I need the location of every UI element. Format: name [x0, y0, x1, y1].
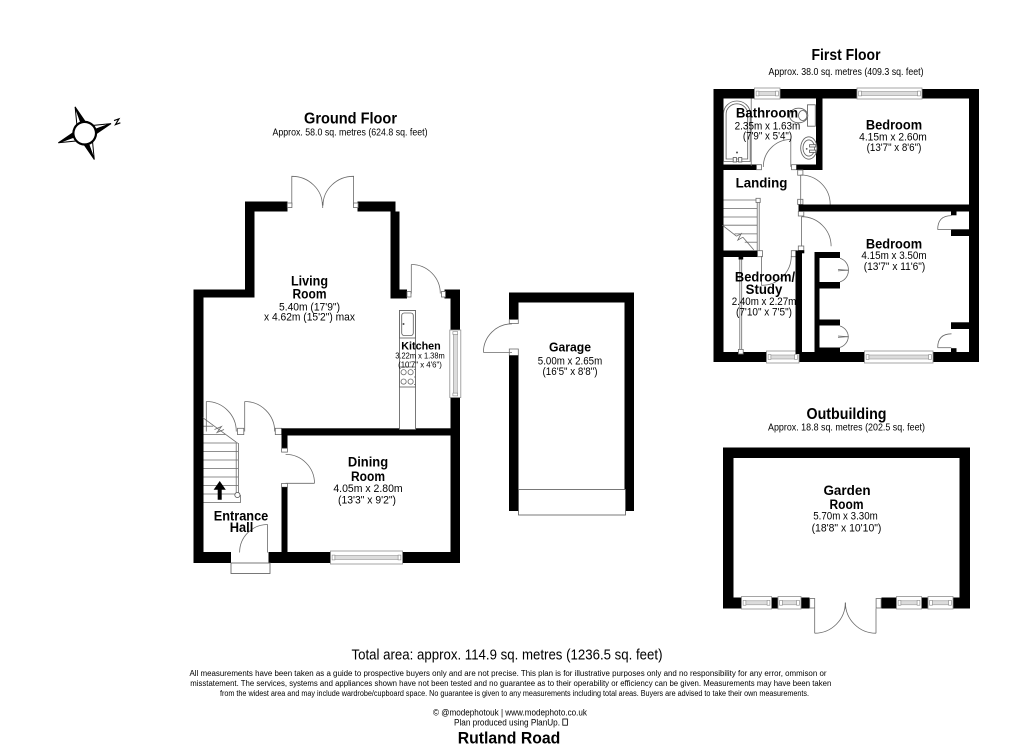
svg-text:Approx. 58.0 sq. metres (624.8: Approx. 58.0 sq. metres (624.8 sq. feet)	[273, 127, 428, 139]
svg-text:Outbuilding: Outbuilding	[807, 406, 887, 423]
svg-text:Room: Room	[351, 469, 385, 484]
svg-text:Plan produced using PlanUp.: Plan produced using PlanUp.	[454, 718, 560, 728]
svg-text:© @modephotouk | www.modephoto: © @modephotouk | www.modephoto.co.uk	[433, 708, 587, 718]
svg-text:Bathroom: Bathroom	[736, 106, 798, 121]
svg-text:(13'7" x 11'6"): (13'7" x 11'6")	[864, 261, 926, 273]
svg-text:(18'8" x 10'10"): (18'8" x 10'10")	[812, 523, 882, 535]
svg-text:Hall: Hall	[230, 520, 254, 535]
svg-text:Garage: Garage	[549, 341, 591, 355]
svg-text:(7'9" x 5'4"): (7'9" x 5'4")	[743, 131, 792, 143]
svg-text:Study: Study	[746, 282, 783, 297]
svg-text:Room: Room	[293, 287, 327, 302]
svg-text:Landing: Landing	[736, 175, 788, 191]
svg-text:5.70m x 3.30m: 5.70m x 3.30m	[813, 511, 878, 523]
svg-text:3.22m x 1.38m: 3.22m x 1.38m	[395, 352, 445, 361]
svg-text:Ground Floor: Ground Floor	[304, 111, 397, 128]
svg-text:Total area: approx. 114.9 sq.: Total area: approx. 114.9 sq. metres (12…	[352, 648, 663, 664]
svg-text:(13'7" x 8'6"): (13'7" x 8'6")	[867, 142, 922, 154]
svg-text:Approx. 18.8 sq. metres (202.5: Approx. 18.8 sq. metres (202.5 sq. feet)	[768, 422, 925, 434]
svg-text:misstatement. The services, sy: misstatement. The services, systems and …	[190, 679, 831, 688]
svg-text:(10'7" x 4'6"): (10'7" x 4'6")	[398, 361, 442, 370]
svg-text:4.05m x 2.80m: 4.05m x 2.80m	[333, 483, 402, 495]
svg-text:Rutland Road: Rutland Road	[458, 730, 561, 745]
svg-text:(7'10" x 7'5"): (7'10" x 7'5")	[736, 307, 792, 319]
svg-text:Dining: Dining	[348, 455, 388, 470]
svg-text:First Floor: First Floor	[812, 47, 881, 64]
svg-text:Approx. 38.0 sq. metres (409.3: Approx. 38.0 sq. metres (409.3 sq. feet)	[769, 66, 924, 78]
svg-text:x 4.62m (15'2") max: x 4.62m (15'2") max	[264, 312, 355, 324]
svg-text:Bedroom: Bedroom	[866, 118, 922, 133]
svg-text:All measurements have been tak: All measurements have been taken as a gu…	[190, 669, 827, 678]
svg-text:(13'3" x 9'2"): (13'3" x 9'2")	[338, 495, 396, 507]
svg-text:from the widest area and may i: from the widest area and may include war…	[220, 689, 809, 698]
svg-text:Garden: Garden	[823, 483, 870, 498]
svg-text:(16'5" x 8'8"): (16'5" x 8'8")	[543, 366, 598, 378]
